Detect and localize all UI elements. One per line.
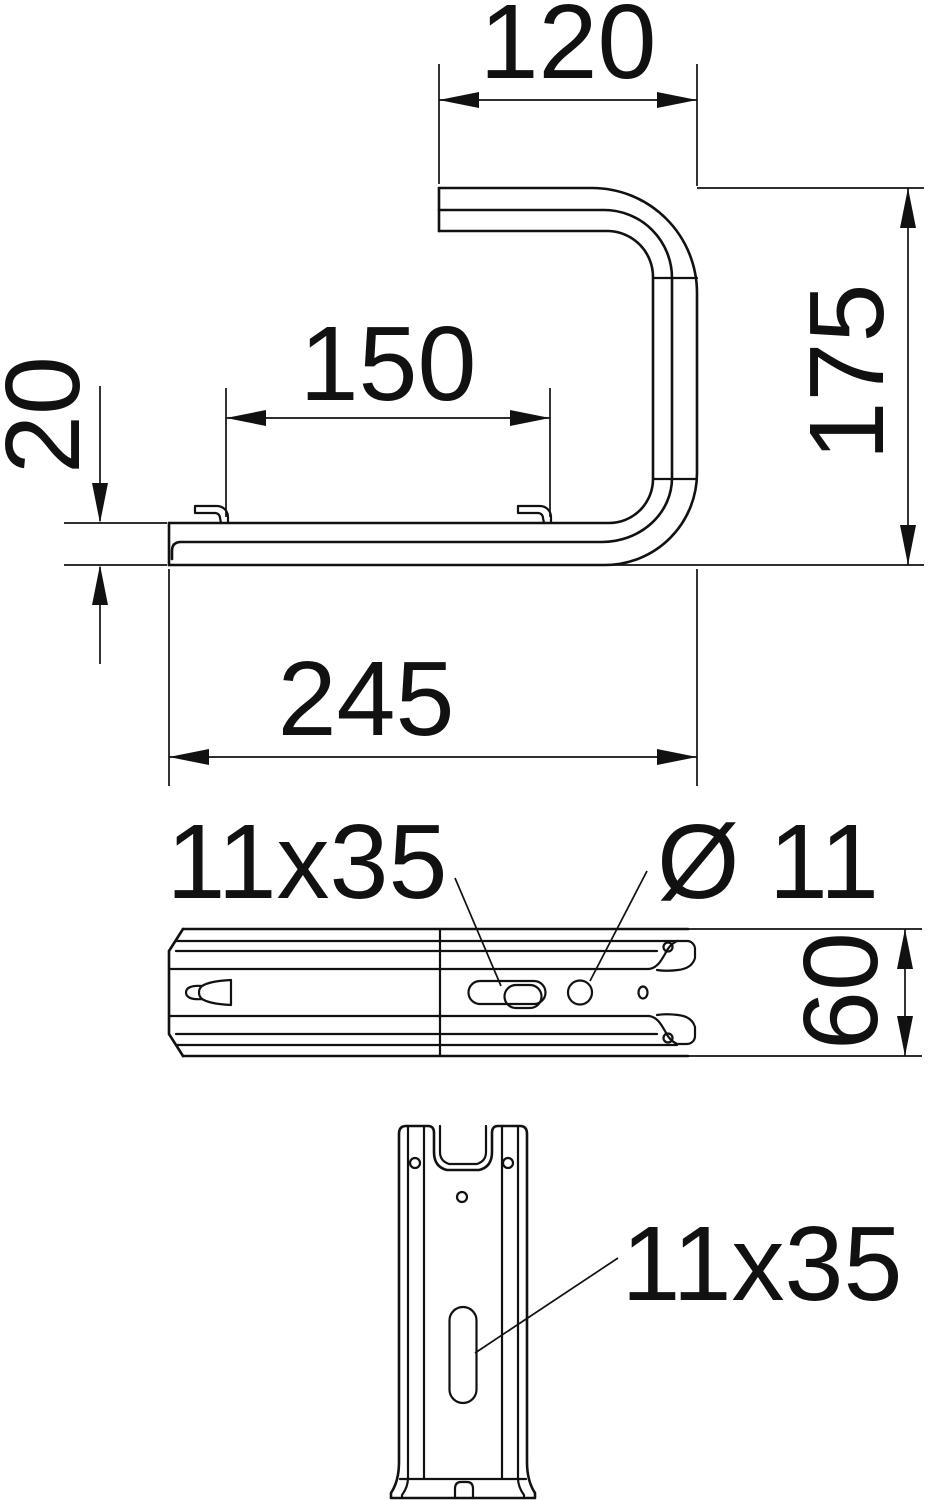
arrowhead-left <box>169 749 209 765</box>
rail-fold-lines <box>169 941 677 1045</box>
bracket-drawing-svg: 120 175 150 20 245 <box>0 0 935 1500</box>
front-view: 11x35 <box>391 1126 902 1498</box>
dim-120-label: 120 <box>480 0 657 101</box>
arrowhead-up <box>92 565 108 605</box>
dim-60-label: 60 <box>782 932 900 1050</box>
label-slot-11x35-front: 11x35 <box>475 1205 902 1353</box>
dimension-120: 120 <box>439 0 697 186</box>
dim-150-label: 150 <box>300 305 477 423</box>
dim-175-label: 175 <box>788 284 906 461</box>
dimension-60: 60 <box>688 929 922 1056</box>
front-inner-dip <box>440 1126 486 1164</box>
keyhole-slot <box>186 980 231 1005</box>
hole-d11-label: Ø 11 <box>657 803 879 921</box>
arrowhead-right <box>510 410 550 426</box>
dimension-175: 175 <box>607 188 924 565</box>
side-view: 120 175 150 20 245 <box>0 0 924 786</box>
front-slot-11x35 <box>450 1307 477 1403</box>
arrowhead-right <box>657 92 697 108</box>
front-hole-center <box>457 1192 467 1202</box>
front-hole-left-horn <box>410 1158 420 1168</box>
arrowhead-up <box>900 188 916 228</box>
arrowhead-left <box>439 92 479 108</box>
dim-245-label: 245 <box>278 640 455 758</box>
dimension-150: 150 <box>226 305 550 517</box>
front-slot-11x35-label: 11x35 <box>622 1205 903 1323</box>
slot-11x35 <box>469 981 546 1004</box>
leader-hole <box>590 871 647 981</box>
left-retaining-tab <box>195 506 228 523</box>
front-bottom-tab <box>455 1482 473 1498</box>
front-outer-contour <box>391 1126 535 1498</box>
technical-drawing-canvas: 120 175 150 20 245 <box>0 0 935 1500</box>
rail-right-end-flare <box>649 941 695 1044</box>
front-hole-right-horn <box>503 1158 513 1168</box>
rail-left-end <box>169 929 183 1056</box>
right-retaining-tab <box>518 506 551 523</box>
arrowhead-down <box>900 525 916 565</box>
slot-11x35-label: 11x35 <box>167 803 448 921</box>
dim-20-label: 20 <box>0 356 102 474</box>
front-fold-lines <box>408 1126 518 1478</box>
pilot-hole-center <box>639 987 648 999</box>
plan-view: 11x35 Ø 11 60 <box>167 803 922 1056</box>
dimension-20: 20 <box>0 356 167 664</box>
arrowhead-right <box>657 749 697 765</box>
arrowhead-down <box>92 483 108 523</box>
label-slot-11x35-plan: 11x35 <box>167 803 501 986</box>
hole-d11 <box>568 981 592 1005</box>
arrowhead-left <box>226 410 266 426</box>
leader-front-slot <box>475 1258 618 1353</box>
dimension-245: 245 <box>169 569 697 786</box>
